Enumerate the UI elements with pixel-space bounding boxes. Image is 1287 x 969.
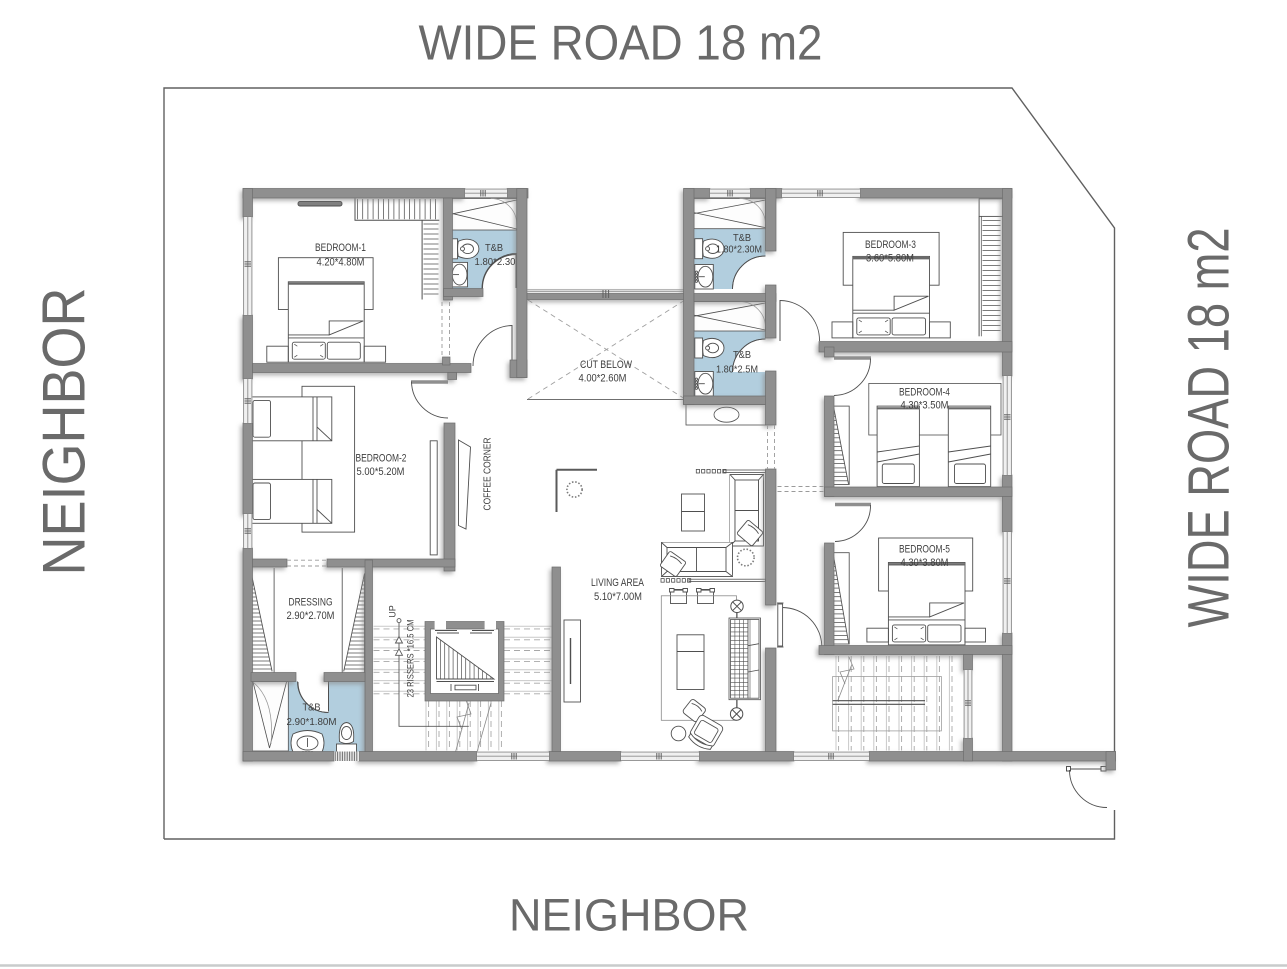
svg-text:T&B: T&B	[733, 232, 751, 244]
svg-text:1.80*2.30: 1.80*2.30	[475, 256, 516, 268]
svg-text:CUT BELOW: CUT BELOW	[580, 359, 632, 371]
svg-text:T&B: T&B	[485, 242, 503, 254]
svg-text:BEDROOM-3: BEDROOM-3	[865, 239, 916, 251]
svg-text:DRESSING: DRESSING	[289, 597, 333, 609]
svg-text:1.80*2.30M: 1.80*2.30M	[716, 244, 762, 256]
svg-text:COFFEE CORNER: COFFEE CORNER	[482, 437, 494, 510]
svg-text:4.30*3.80M: 4.30*3.80M	[901, 557, 949, 569]
svg-text:23 RISSERS *16.5 CM: 23 RISSERS *16.5 CM	[406, 620, 416, 698]
svg-text:NEIGHBOR: NEIGHBOR	[509, 890, 749, 941]
svg-text:2.90*1.80M: 2.90*1.80M	[287, 716, 337, 728]
svg-text:BEDROOM-4: BEDROOM-4	[899, 387, 950, 399]
svg-text:4.00*2.60M: 4.00*2.60M	[579, 373, 627, 385]
svg-text:2.90*2.70M: 2.90*2.70M	[287, 610, 335, 622]
svg-text:WIDE ROAD 18 m2: WIDE ROAD 18 m2	[1177, 228, 1242, 628]
svg-text:NEIGHBOR: NEIGHBOR	[31, 288, 98, 576]
svg-text:BEDROOM-2: BEDROOM-2	[356, 453, 407, 465]
svg-text:BEDROOM-5: BEDROOM-5	[899, 544, 950, 556]
svg-text:LIVING AREA: LIVING AREA	[591, 577, 645, 589]
svg-text:4.20*4.80M: 4.20*4.80M	[317, 257, 365, 269]
svg-text:5.10*7.00M: 5.10*7.00M	[594, 591, 642, 603]
svg-text:BEDROOM-1: BEDROOM-1	[315, 242, 366, 254]
svg-text:UP: UP	[388, 605, 398, 618]
svg-text:5.00*5.20M: 5.00*5.20M	[357, 466, 405, 478]
svg-text:3.60*5.80M: 3.60*5.80M	[866, 253, 914, 265]
svg-text:WIDE ROAD 18 m2: WIDE ROAD 18 m2	[419, 16, 823, 71]
svg-text:4.30*3.50M: 4.30*3.50M	[901, 400, 949, 412]
svg-text:T&B: T&B	[303, 702, 321, 714]
svg-text:1.80*2.5M: 1.80*2.5M	[716, 364, 758, 376]
svg-text:T&B: T&B	[733, 349, 751, 361]
